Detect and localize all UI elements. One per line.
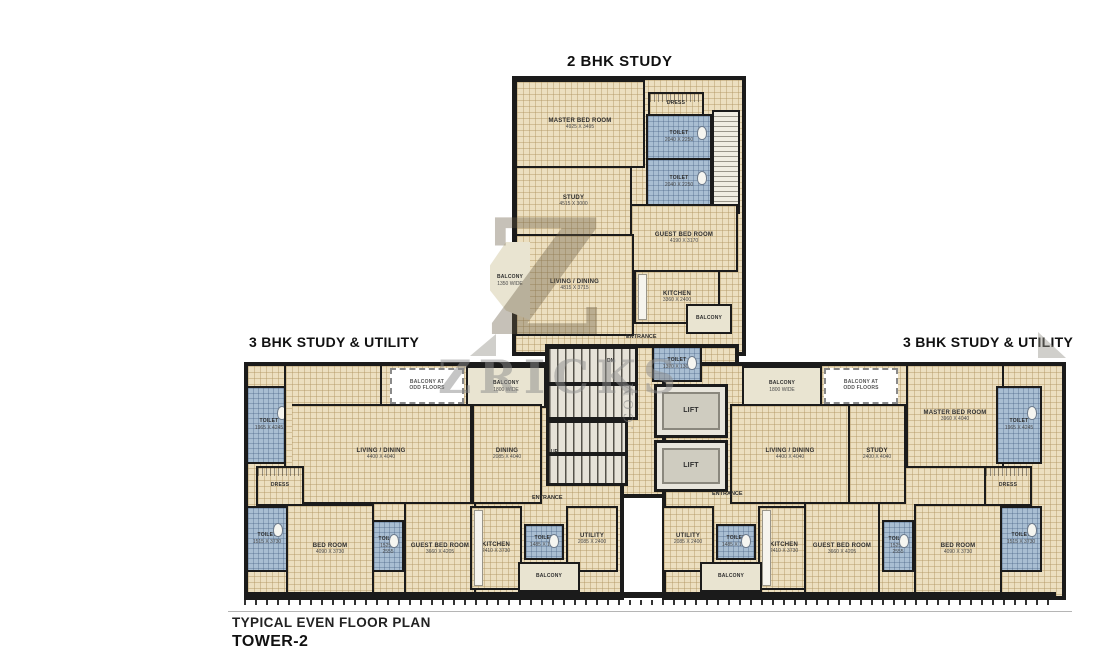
room-right-kitchen: KITCHEN 2410 X 3730 xyxy=(758,506,810,590)
room-left-bedroom: BED ROOM 4090 X 3730 xyxy=(286,504,374,594)
room-2bhk-master-bedroom: MASTER BED ROOM 4925 X 3495 xyxy=(515,80,645,168)
room-2bhk-balcony-right: BALCONY xyxy=(686,304,732,334)
room-2bhk-toilet-lower: TOILET 2040 X 2250 xyxy=(646,158,712,206)
room-left-toilet-lower: TOILET 1515 X 3730 xyxy=(246,506,288,572)
watermark-letter: Z xyxy=(486,198,603,358)
room-right-toilet-mid: TOILET 1525 X 2555 xyxy=(882,520,914,572)
plan-title: TYPICAL EVEN FLOOR PLAN xyxy=(232,615,431,630)
room-label: MASTER BED ROOM xyxy=(549,118,612,125)
room-right-bedroom: BED ROOM 4090 X 3730 xyxy=(914,504,1002,594)
room-right-toilet-master: TOILET 1965 X 4245 xyxy=(996,386,1042,464)
room-2bhk-guest-bedroom: GUEST BED ROOM 4190 X 3170 xyxy=(630,204,738,272)
watermark-text: ZRICKS xyxy=(438,350,683,404)
room-right-toilet-lower: TOILET 1515 X 3730 xyxy=(1000,506,1042,572)
lift-2: LIFT xyxy=(654,440,728,492)
room-left-guest-bedroom: GUEST BED ROOM 3660 X 4205 xyxy=(404,502,476,596)
room-left-dress: DRESS xyxy=(256,466,304,506)
room-right-living-dining: LIVING / DINING 4400 X 4040 xyxy=(730,404,850,504)
room-left-kitchen: KITCHEN 2410 X 3730 xyxy=(470,506,522,590)
ground-line xyxy=(228,611,1072,612)
room-left-toilet-small: TOILET 1485 X 1200 xyxy=(524,524,564,560)
room-right-balcony: BALCONY xyxy=(700,562,762,592)
room-2bhk-toilet-upper: TOILET 2040 X 2250 xyxy=(646,114,712,160)
room-right-balcony-1800: BALCONY 1800 WIDE xyxy=(742,366,822,408)
unit-title-3bhk-left: 3 BHK STUDY & UTILITY xyxy=(249,334,419,350)
floor-plan-canvas: 2 BHK STUDY 3 BHK STUDY & UTILITY 3 BHK … xyxy=(0,0,1100,658)
room-2bhk-dress: DRESS xyxy=(648,92,704,116)
room-dim: 4925 X 3495 xyxy=(566,124,594,130)
tower-title: TOWER-2 xyxy=(232,633,308,651)
watermark-suffix: .COM xyxy=(622,354,637,430)
room-right-toilet-small: TOILET 1485 X 1200 xyxy=(716,524,756,560)
entrance-label-2bhk: ENTRANCE xyxy=(626,334,657,340)
balcony-strip-2bhk xyxy=(712,110,740,214)
stair-up-label: UP xyxy=(551,449,558,455)
room-right-dress: DRESS xyxy=(984,466,1032,506)
unit-title-2bhk: 2 BHK STUDY xyxy=(567,53,673,70)
stair-divider xyxy=(549,452,625,456)
room-right-balcony-odd-floors: BALCONY AT ODD FLOORS xyxy=(824,368,898,404)
plinth-wall xyxy=(244,592,1056,598)
room-left-living-dining: LIVING / DINING 4400 X 4040 xyxy=(292,404,472,504)
staircase-lower xyxy=(546,420,628,486)
entrance-label-left: ENTRANCE xyxy=(532,495,563,501)
room-right-master-bedroom: MASTER BED ROOM 3960 X 4040 xyxy=(906,364,1004,468)
room-right-guest-bedroom: GUEST BED ROOM 3660 X 4205 xyxy=(804,502,880,596)
room-right-study: STUDY 2400 X 4040 xyxy=(848,404,906,504)
plinth-ticks xyxy=(244,600,1056,605)
room-left-dining: DINING 2085 X 4040 xyxy=(472,404,542,504)
room-left-toilet-mid: TOILET 1525 X 2555 xyxy=(372,520,404,572)
room-left-balcony: BALCONY xyxy=(518,562,580,592)
entrance-label-right: ENTRANCE xyxy=(712,491,743,497)
